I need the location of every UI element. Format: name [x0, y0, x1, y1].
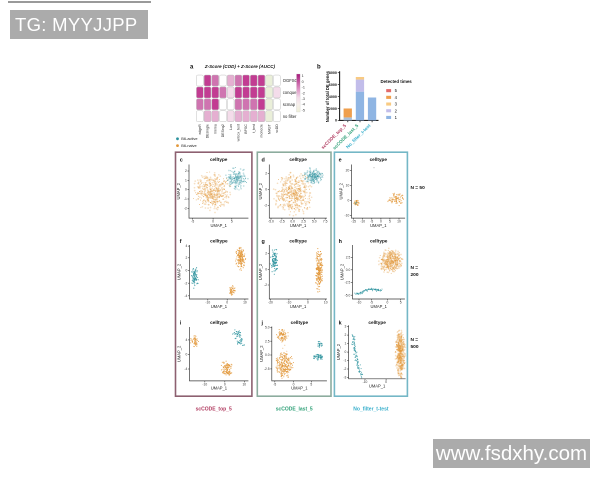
svg-text:b: b: [317, 64, 321, 70]
svg-text:10: 10: [346, 184, 350, 188]
svg-text:6000: 6000: [329, 83, 337, 87]
svg-text:20: 20: [346, 169, 350, 173]
svg-text:k: k: [339, 320, 342, 326]
svg-text:celltype: celltype: [289, 157, 307, 162]
svg-text:-2: -2: [343, 367, 346, 371]
svg-text:N = 50: N = 50: [411, 185, 426, 191]
svg-text:-4: -4: [184, 294, 187, 298]
svg-text:0: 0: [265, 188, 267, 192]
svg-text:5: 5: [310, 382, 312, 386]
svg-text:5: 5: [231, 220, 233, 224]
svg-text:500: 500: [411, 344, 419, 350]
svg-text:g: g: [262, 239, 265, 245]
svg-text:OGFSC: OGFSC: [283, 78, 298, 83]
svg-text:DESeq2: DESeq2: [221, 124, 225, 137]
svg-text:no filter: no filter: [283, 114, 297, 119]
svg-text:celltype: celltype: [289, 239, 307, 244]
svg-text:d: d: [262, 158, 265, 164]
svg-text:2: 2: [395, 108, 398, 113]
svg-text:0: 0: [302, 80, 304, 84]
svg-text:DEsingle: DEsingle: [206, 124, 210, 138]
svg-text:-5: -5: [191, 220, 194, 224]
svg-text:8000: 8000: [329, 71, 337, 75]
svg-text:-2: -2: [184, 207, 187, 211]
svg-text:0.0: 0.0: [346, 268, 351, 272]
svg-text:-3: -3: [302, 97, 305, 101]
svg-text:-5.0: -5.0: [345, 293, 351, 297]
svg-text:scmap: scmap: [283, 102, 296, 107]
svg-text:UMAP_2: UMAP_2: [176, 182, 181, 199]
svg-text:-10: -10: [345, 214, 350, 218]
svg-text:0: 0: [345, 350, 347, 354]
svg-text:-2: -2: [264, 204, 267, 208]
svg-text:scCODE_top_5: scCODE_top_5: [196, 407, 232, 413]
svg-text:0: 0: [185, 353, 187, 357]
svg-text:scDD: scDD: [275, 124, 279, 133]
svg-text:UMAP_1: UMAP_1: [369, 384, 386, 389]
svg-text:N =: N =: [411, 265, 419, 271]
svg-text:1: 1: [345, 342, 347, 346]
svg-text:f: f: [180, 239, 182, 245]
svg-text:No_filter_t-test: No_filter_t-test: [353, 407, 389, 413]
svg-text:4: 4: [185, 244, 187, 248]
svg-text:-1: -1: [302, 86, 305, 90]
svg-text:celltype: celltype: [370, 157, 388, 162]
svg-text:3: 3: [345, 325, 347, 329]
svg-text:Detected times: Detected times: [381, 79, 413, 84]
svg-text:4: 4: [185, 338, 187, 342]
svg-text:-2.5: -2.5: [264, 367, 270, 371]
svg-text:-5: -5: [302, 108, 305, 112]
svg-text:0: 0: [385, 380, 387, 384]
svg-text:2: 2: [185, 256, 187, 260]
svg-text:-10: -10: [363, 380, 368, 384]
svg-text:conquer: conquer: [283, 90, 299, 95]
svg-text:h: h: [339, 239, 342, 245]
svg-text:5: 5: [400, 300, 402, 304]
svg-text:-1: -1: [184, 197, 187, 201]
svg-text:scCODE_last_5: scCODE_last_5: [276, 407, 313, 413]
svg-text:0.0: 0.0: [265, 353, 270, 357]
svg-text:2000: 2000: [329, 107, 337, 111]
svg-text:celltype: celltype: [368, 320, 386, 325]
svg-text:monocle: monocle: [260, 124, 264, 137]
svg-text:1: 1: [302, 74, 304, 78]
svg-text:celltype: celltype: [210, 157, 228, 162]
svg-text:0: 0: [265, 267, 267, 271]
svg-text:200: 200: [411, 272, 419, 278]
svg-text:-5.0: -5.0: [268, 220, 274, 224]
svg-text:5: 5: [389, 220, 391, 224]
svg-text:2: 2: [265, 252, 267, 256]
svg-text:10: 10: [324, 300, 328, 304]
svg-text:celltype: celltype: [291, 320, 309, 325]
svg-text:e: e: [339, 158, 342, 164]
svg-text:0: 0: [185, 188, 187, 192]
svg-text:0: 0: [335, 119, 337, 123]
svg-text:2: 2: [185, 169, 187, 173]
svg-text:UMAP_2: UMAP_2: [336, 343, 341, 360]
svg-text:celltype: celltype: [210, 239, 228, 244]
svg-text:Lun: Lun: [229, 124, 233, 130]
svg-text:UMAP_1: UMAP_1: [371, 304, 388, 309]
svg-text:4000: 4000: [329, 95, 337, 99]
svg-text:celltype: celltype: [370, 239, 388, 244]
svg-text:UMAP_2: UMAP_2: [177, 263, 182, 280]
svg-text:UMAP_1: UMAP_1: [211, 223, 228, 228]
svg-text:10: 10: [397, 220, 401, 224]
svg-text:UMAP_1: UMAP_1: [290, 223, 307, 228]
svg-text:-2: -2: [184, 281, 187, 285]
svg-text:-10: -10: [360, 220, 365, 224]
svg-text:-5: -5: [273, 382, 276, 386]
svg-text:5: 5: [395, 88, 398, 93]
svg-text:UMAP_1: UMAP_1: [211, 304, 228, 309]
svg-text:-10: -10: [357, 300, 362, 304]
svg-text:-10: -10: [202, 382, 207, 386]
svg-text:Number of total DE genes: Number of total DE genes: [325, 70, 330, 122]
svg-text:2.5: 2.5: [265, 339, 270, 343]
svg-text:0: 0: [185, 269, 187, 273]
svg-text:c: c: [180, 158, 183, 164]
svg-text:N =: N =: [411, 337, 419, 343]
svg-text:UMAP_2: UMAP_2: [258, 182, 263, 199]
svg-text:-4: -4: [302, 103, 305, 107]
svg-text:B6-naive: B6-naive: [181, 143, 196, 148]
svg-text:5.0: 5.0: [265, 326, 270, 330]
svg-text:-15: -15: [351, 220, 356, 224]
svg-text:B6-active: B6-active: [181, 136, 197, 141]
svg-text:BPSC: BPSC: [244, 124, 248, 134]
svg-text:-3: -3: [343, 376, 346, 380]
svg-text:t_test: t_test: [252, 124, 256, 133]
svg-text:UMAP_2: UMAP_2: [177, 345, 182, 362]
svg-text:UMAP_2: UMAP_2: [340, 263, 345, 280]
svg-text:2: 2: [345, 333, 347, 337]
svg-text:0: 0: [347, 199, 349, 203]
svg-text:5.0: 5.0: [312, 220, 317, 224]
svg-text:-2.5: -2.5: [345, 280, 351, 284]
svg-text:-2.5: -2.5: [279, 220, 285, 224]
svg-text:-2: -2: [302, 91, 305, 95]
svg-text:4: 4: [395, 95, 398, 100]
svg-text:-1: -1: [343, 359, 346, 363]
svg-text:UMAP_2: UMAP_2: [258, 263, 263, 280]
svg-text:2: 2: [265, 172, 267, 176]
svg-text:UMAP_1: UMAP_1: [291, 386, 308, 391]
svg-text:UMAP_1: UMAP_1: [370, 223, 387, 228]
svg-text:i: i: [180, 320, 182, 326]
svg-text:limma: limma: [213, 124, 217, 133]
svg-text:7.5: 7.5: [323, 220, 328, 224]
svg-text:0: 0: [307, 300, 309, 304]
svg-text:MAST: MAST: [267, 123, 271, 134]
svg-text:-2: -2: [264, 283, 267, 287]
svg-text:UMAP_2: UMAP_2: [259, 345, 264, 362]
svg-text:-20: -20: [268, 300, 273, 304]
svg-text:wilcox_test: wilcox_test: [237, 124, 241, 141]
svg-text:UMAP_1: UMAP_1: [290, 304, 307, 309]
svg-text:-10: -10: [205, 300, 210, 304]
svg-text:2.5: 2.5: [346, 256, 351, 260]
svg-text:a: a: [190, 65, 194, 71]
svg-text:Z-Score (COD) + Z-Score (AUCC): Z-Score (COD) + Z-Score (AUCC): [204, 64, 276, 69]
svg-text:10: 10: [243, 300, 247, 304]
svg-text:10: 10: [242, 382, 246, 386]
svg-text:j: j: [261, 320, 264, 326]
svg-text:3: 3: [395, 102, 398, 107]
svg-text:1: 1: [395, 115, 398, 120]
svg-text:UMAP_2: UMAP_2: [339, 182, 344, 199]
svg-text:celltype: celltype: [210, 320, 228, 325]
svg-text:UMAP_1: UMAP_1: [211, 386, 228, 391]
svg-text:edgeR: edgeR: [198, 124, 202, 135]
svg-text:1: 1: [185, 179, 187, 183]
svg-text:-4: -4: [184, 367, 187, 371]
